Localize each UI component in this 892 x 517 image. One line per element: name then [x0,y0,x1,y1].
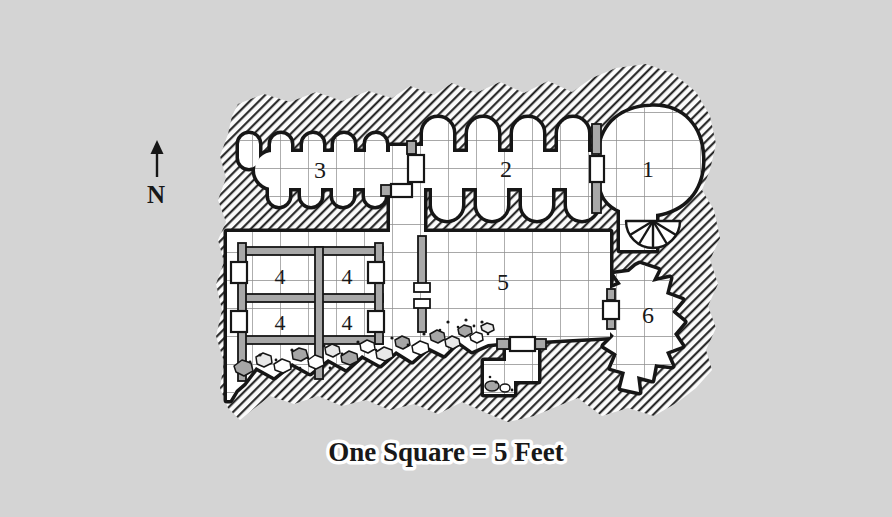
door-cell-ne [368,262,384,283]
rubble-stone [430,330,445,343]
jamb-passage-left [381,185,391,196]
door-room5-room6 [603,301,619,319]
rubble-stone [256,353,272,367]
cell-4-ne-label: 4 [342,264,353,289]
door-room3-passage [391,184,412,197]
rubble-boulder [500,384,510,392]
room-6-label: 6 [642,302,654,328]
jamb-alcove-left [497,339,509,349]
room-3-label: 3 [314,157,326,183]
divider-gap-cap-top [414,283,430,292]
cell-4-sw-label: 4 [275,310,286,335]
dungeon-map-canvas: 1 2 3 4 4 4 4 5 6 N One Square = 5 Feet [0,0,892,517]
cell-4-nw-label: 4 [275,264,286,289]
divider-gap-cap-bottom [414,299,430,308]
rubble-stone [325,344,340,357]
jamb-room2-room1-bottom [592,179,601,213]
cell-bar-top [240,247,383,255]
door-room5-alcove [510,337,535,351]
door-cell-nw [231,262,247,283]
door-room2-room1 [590,156,604,182]
room-5-label: 5 [497,269,509,295]
jamb-room2-room1-top [592,124,601,154]
rubble-stone [360,340,375,353]
door-cell-se [368,311,384,332]
room-2-label: 2 [500,156,512,182]
cell-4-se-label: 4 [342,310,353,335]
door-cell-sw [231,311,247,332]
jamb-junction-top [407,141,416,154]
divider-wall-upper [418,236,426,286]
rubble-stone [292,348,308,361]
cell-bar-middle [240,294,383,302]
north-arrow: N [147,140,165,208]
north-arrow-head [151,140,164,154]
rubble-stone [395,336,410,349]
room-1-label: 1 [642,156,654,182]
dungeon-map-page: 1 2 3 4 4 4 4 5 6 N One Square = 5 Feet [0,0,892,517]
jamb-room6-top [607,289,615,300]
rubble-stone [445,336,460,349]
scale-caption: One Square = 5 Feet [328,437,563,467]
north-label: N [147,181,165,208]
divider-wall-lower [418,306,426,332]
door-room3-room2 [408,155,424,182]
